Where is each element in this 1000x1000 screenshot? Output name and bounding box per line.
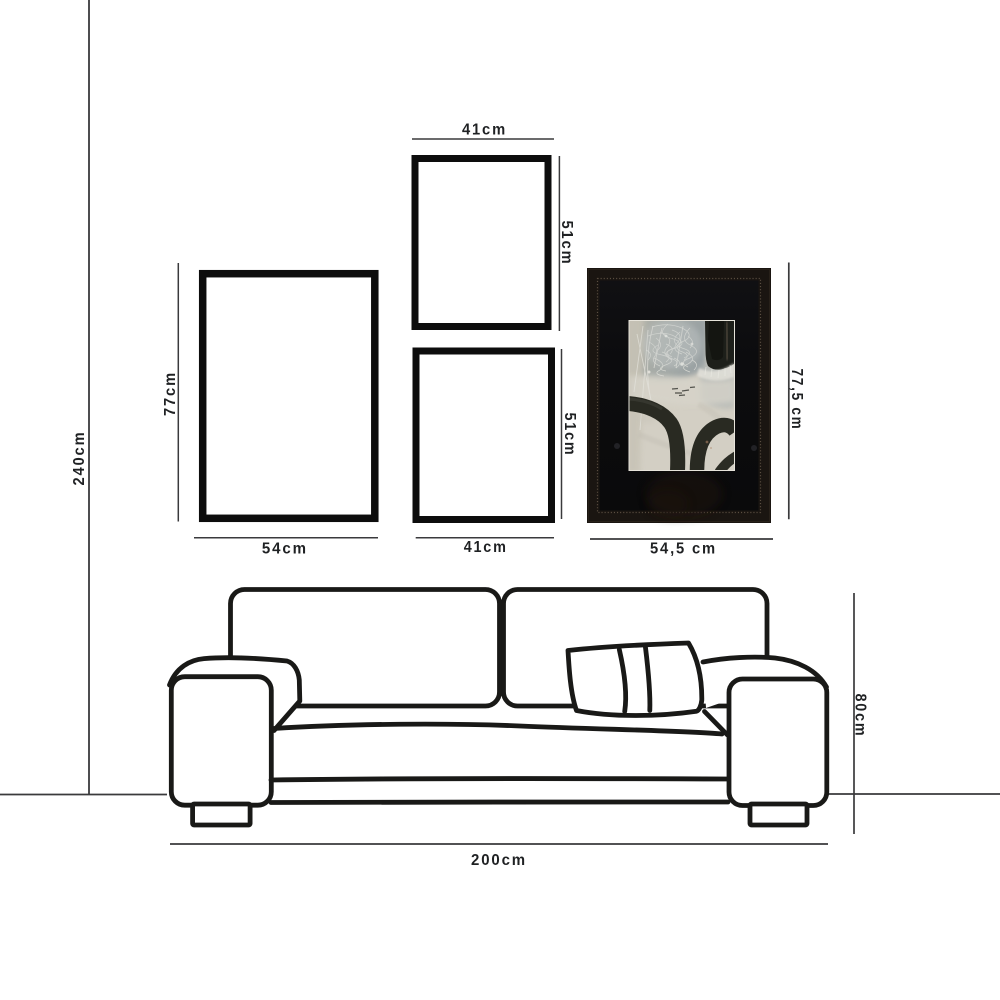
svg-text:240cm: 240cm xyxy=(71,431,88,486)
svg-text:41cm: 41cm xyxy=(464,539,508,556)
svg-text:77,5 cm: 77,5 cm xyxy=(788,369,805,431)
svg-text:51cm: 51cm xyxy=(558,221,575,266)
svg-text:51cm: 51cm xyxy=(561,413,578,457)
svg-text:77cm: 77cm xyxy=(162,371,179,416)
svg-text:200cm: 200cm xyxy=(471,852,527,869)
svg-text:41cm: 41cm xyxy=(462,122,507,139)
svg-text:80cm: 80cm xyxy=(852,694,869,738)
svg-text:54cm: 54cm xyxy=(262,541,308,558)
svg-text:54,5 cm: 54,5 cm xyxy=(650,541,717,558)
